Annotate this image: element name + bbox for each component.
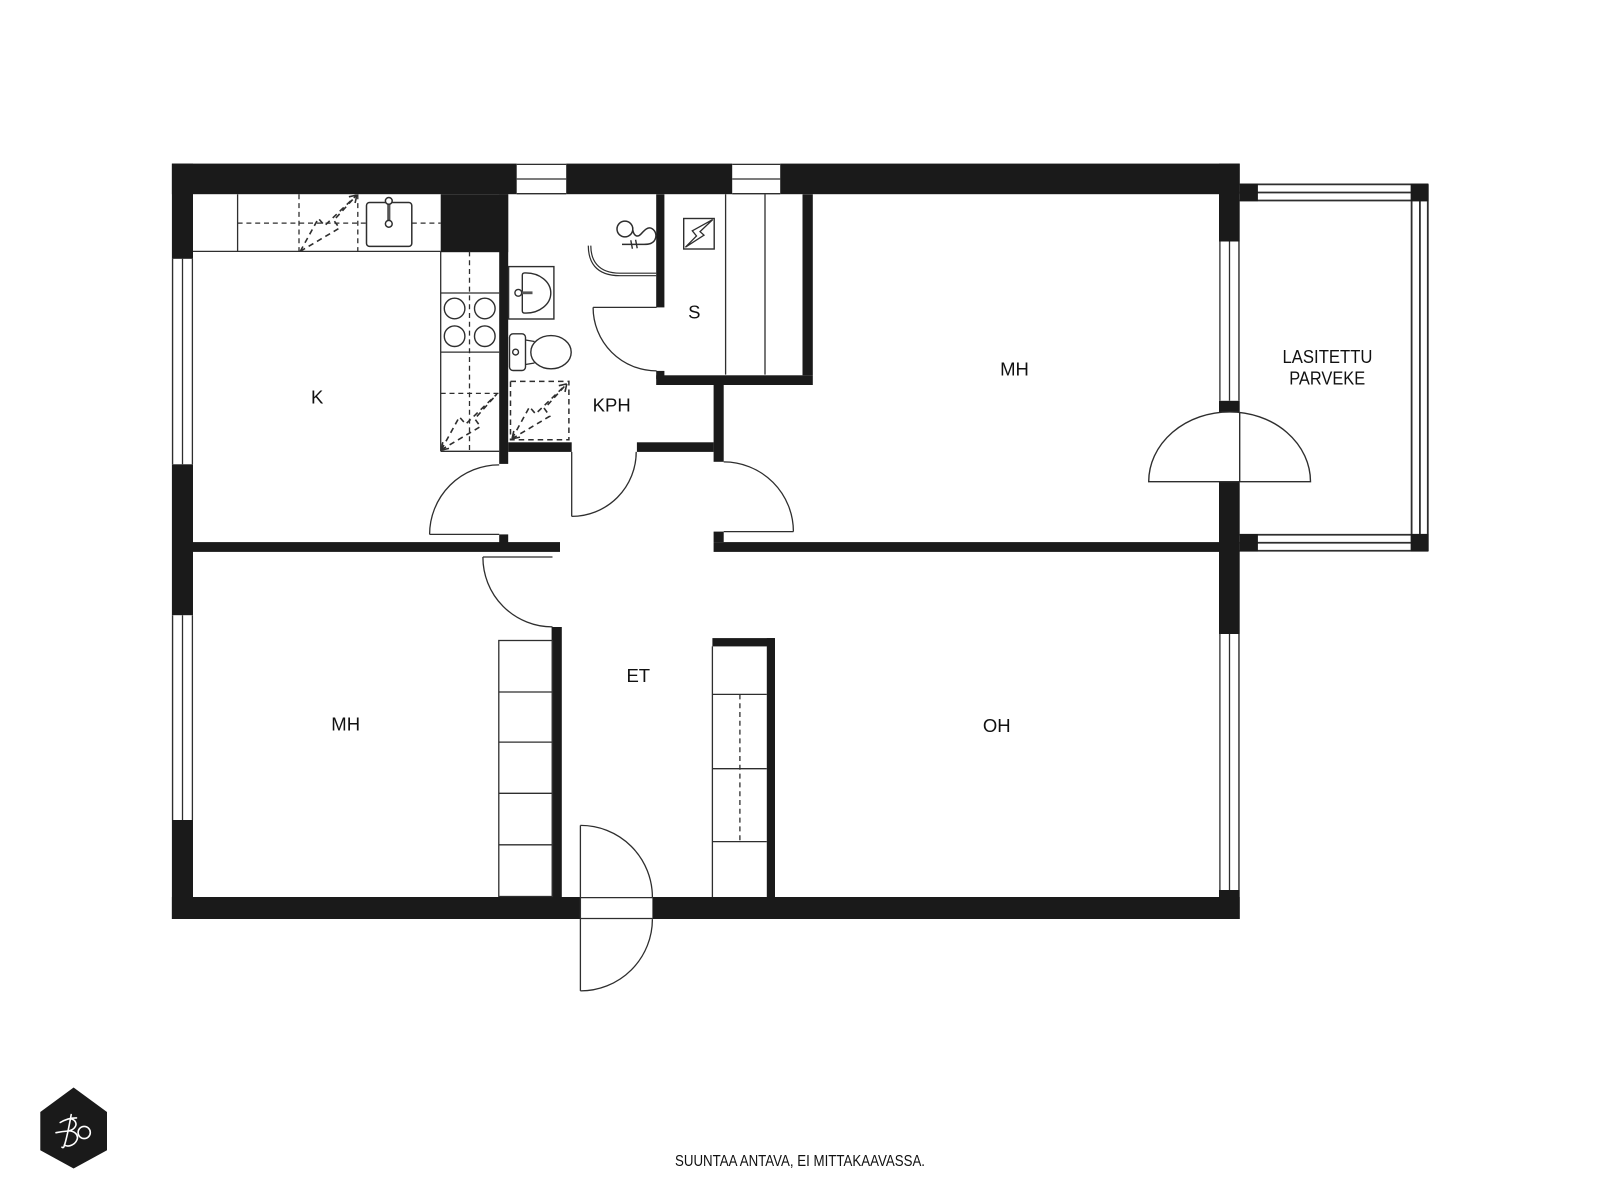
svg-text:S: S (688, 302, 700, 323)
svg-text:K: K (311, 387, 324, 408)
svg-text:KPH: KPH (593, 395, 631, 416)
svg-text:MH: MH (1000, 359, 1029, 380)
svg-text:LASITETTU: LASITETTU (1283, 346, 1373, 367)
svg-text:OH: OH (983, 715, 1011, 736)
svg-text:PARVEKE: PARVEKE (1289, 367, 1365, 388)
svg-text:SUUNTAA ANTAVA, EI MITTAKAAVAS: SUUNTAA ANTAVA, EI MITTAKAAVASSA. (675, 1153, 925, 1170)
svg-text:MH: MH (331, 713, 360, 734)
svg-text:ET: ET (626, 665, 650, 686)
